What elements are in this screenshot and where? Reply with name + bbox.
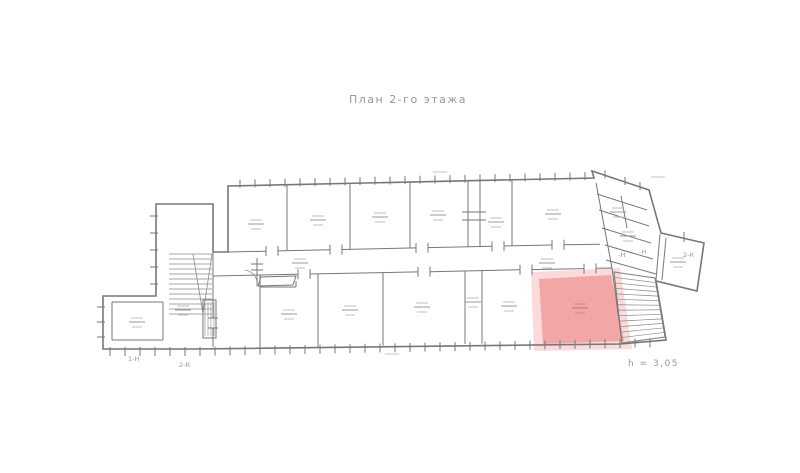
closet-outline [258, 276, 296, 286]
annotation-left-niche: 1-Н [128, 355, 139, 363]
floor-plan-page: План 2-го этажа 1-Н 2-К -Н -Н 2-К h [0, 0, 800, 473]
plan-title: План 2-го этажа [349, 93, 467, 106]
height-note: h = 3,05 [628, 359, 679, 369]
wall-line [656, 234, 660, 280]
wall-line [532, 269, 584, 270]
wall-line [228, 251, 266, 252]
wall-line [213, 274, 298, 276]
wall-line [342, 248, 416, 250]
wall-line [504, 245, 552, 246]
annotation-right-duct: 2-К [683, 251, 694, 259]
annotation-right-niche-2: -Н [639, 248, 646, 256]
annotation-left-duct: 2-К [179, 361, 190, 369]
wall-line [662, 238, 666, 280]
wall-line [310, 272, 418, 274]
wall-line [278, 250, 330, 251]
annotation-right-niche-1: -Н [618, 251, 625, 259]
door-swing-arc [245, 270, 257, 283]
highlight-group [531, 268, 632, 351]
highlighted-room[interactable] [539, 275, 624, 344]
wall-line [430, 270, 520, 272]
wall-line [564, 244, 600, 245]
wall-line [428, 246, 492, 247]
floor-plan-canvas: План 2-го этажа 1-Н 2-К -Н -Н 2-К h [0, 0, 800, 473]
